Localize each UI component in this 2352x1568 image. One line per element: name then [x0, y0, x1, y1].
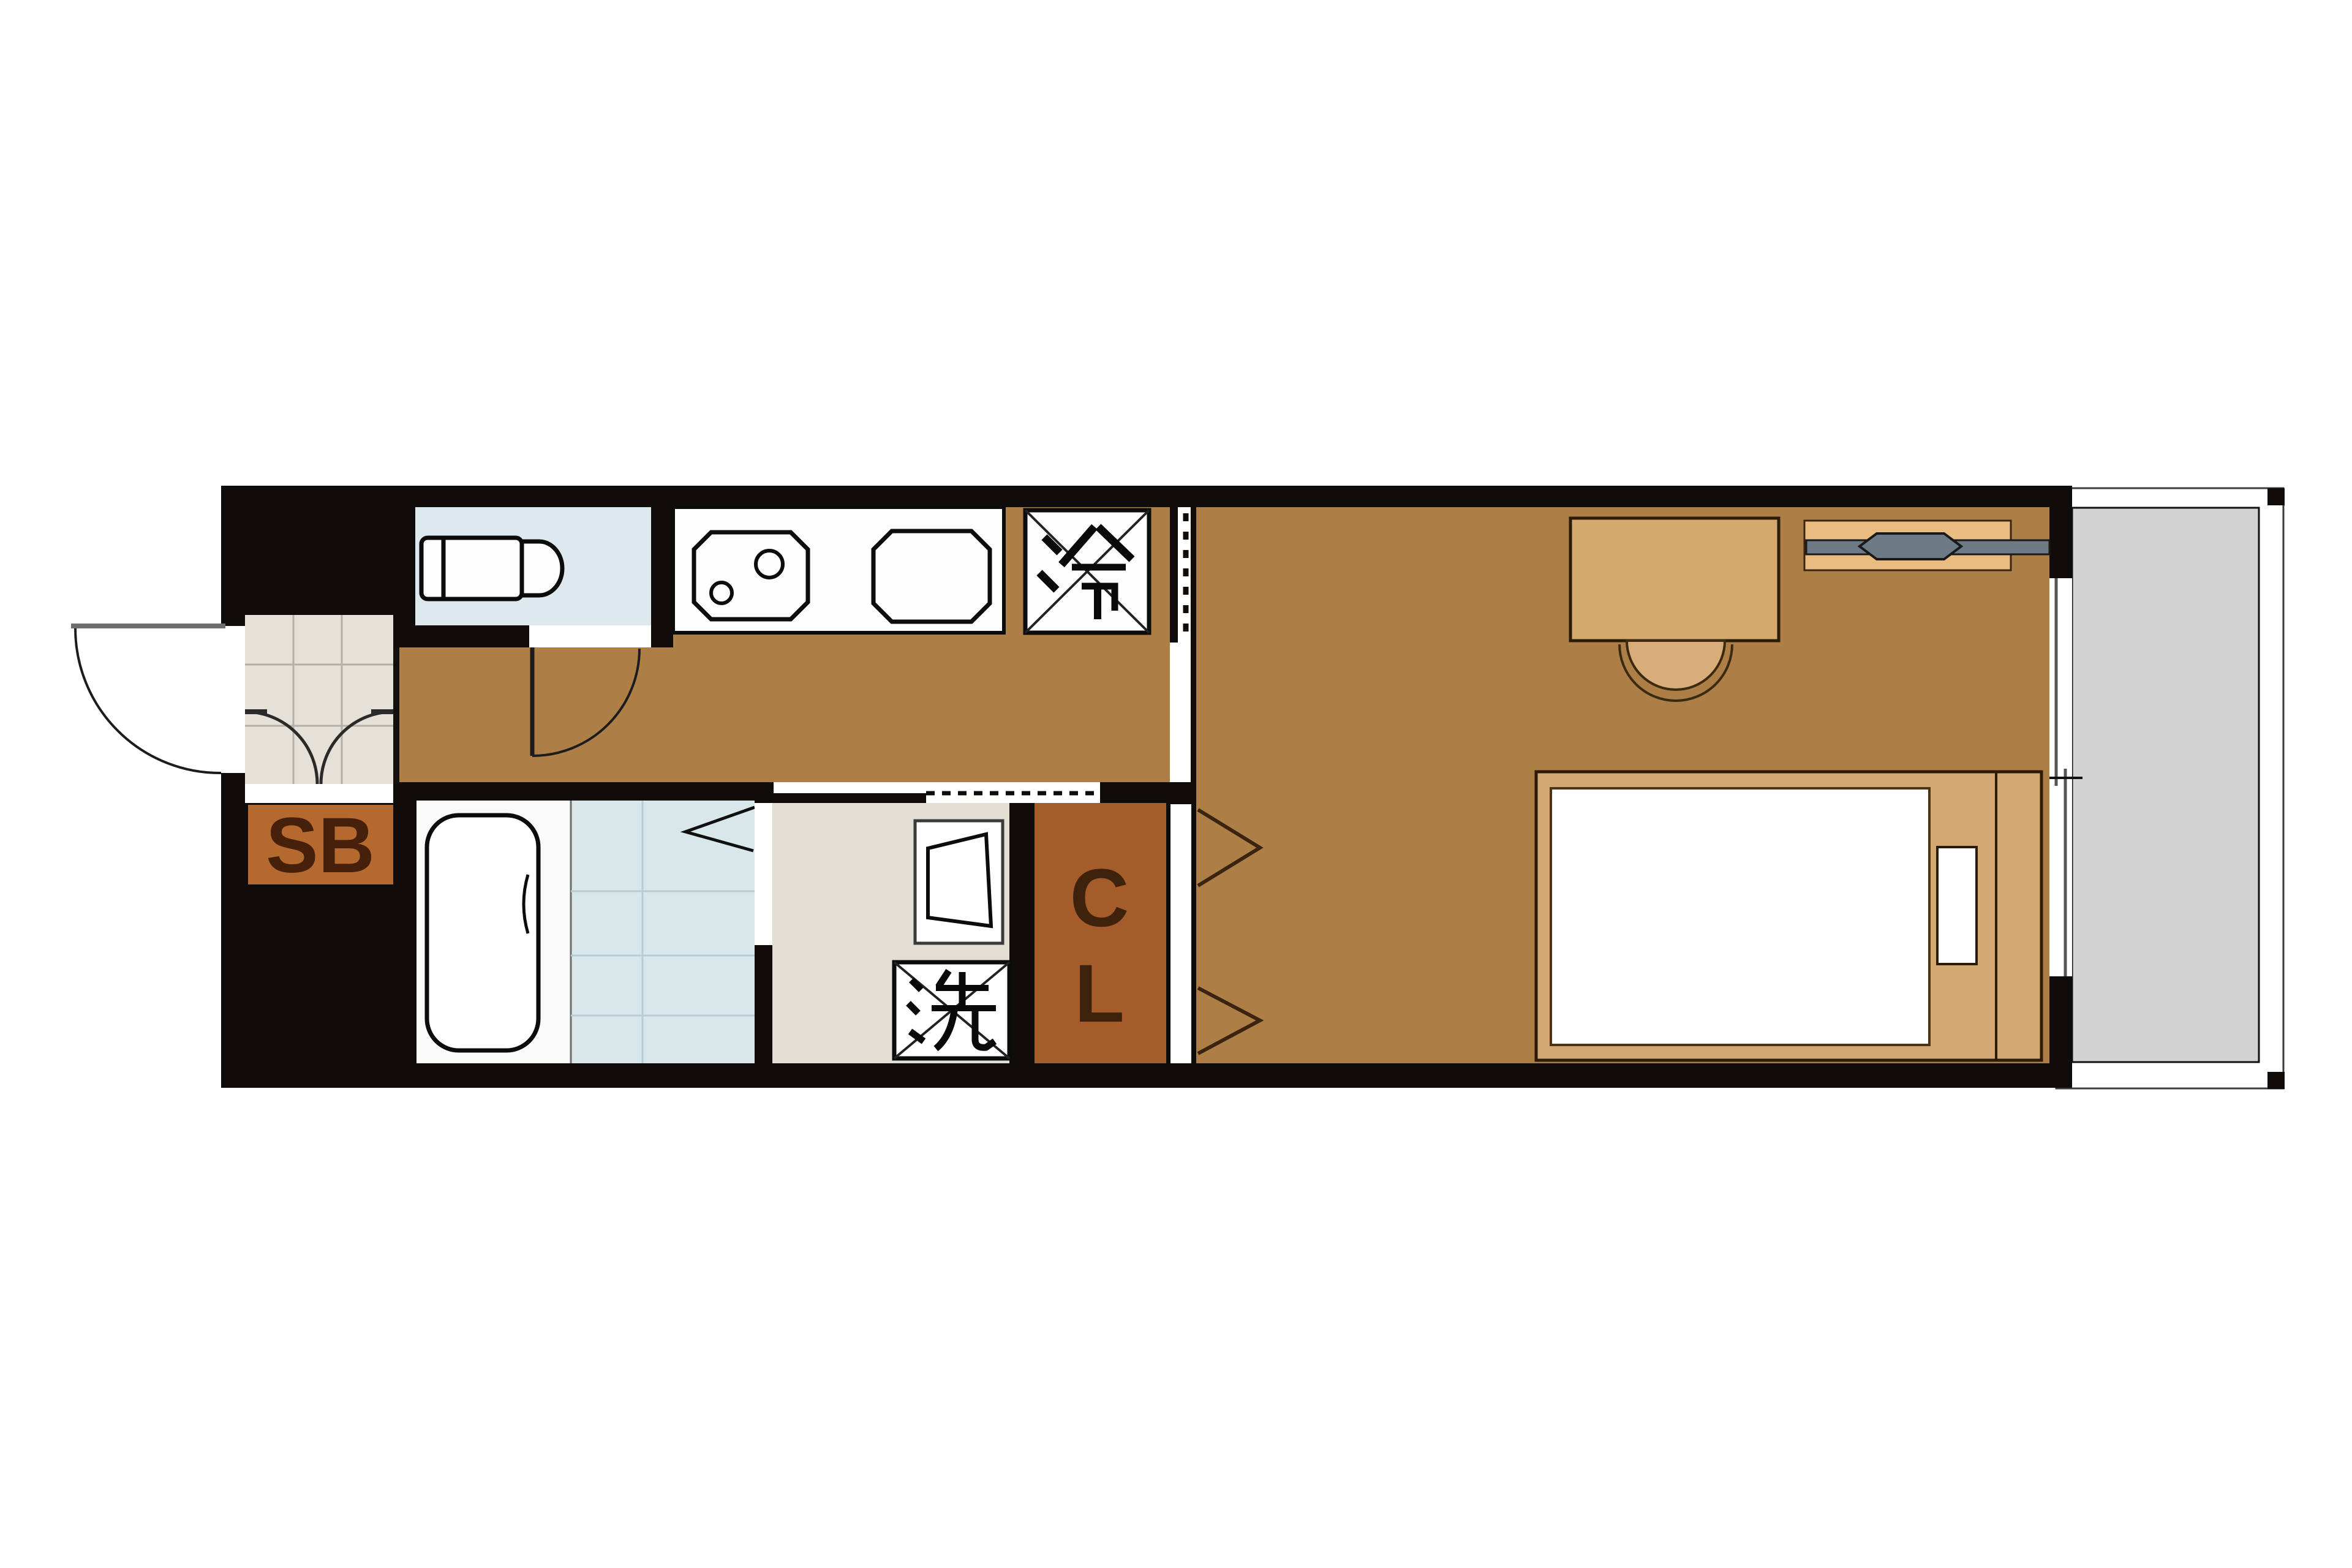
svg-text:SB: SB — [266, 802, 375, 889]
svg-text:L: L — [1074, 948, 1125, 1039]
svg-text:C: C — [1070, 853, 1129, 944]
